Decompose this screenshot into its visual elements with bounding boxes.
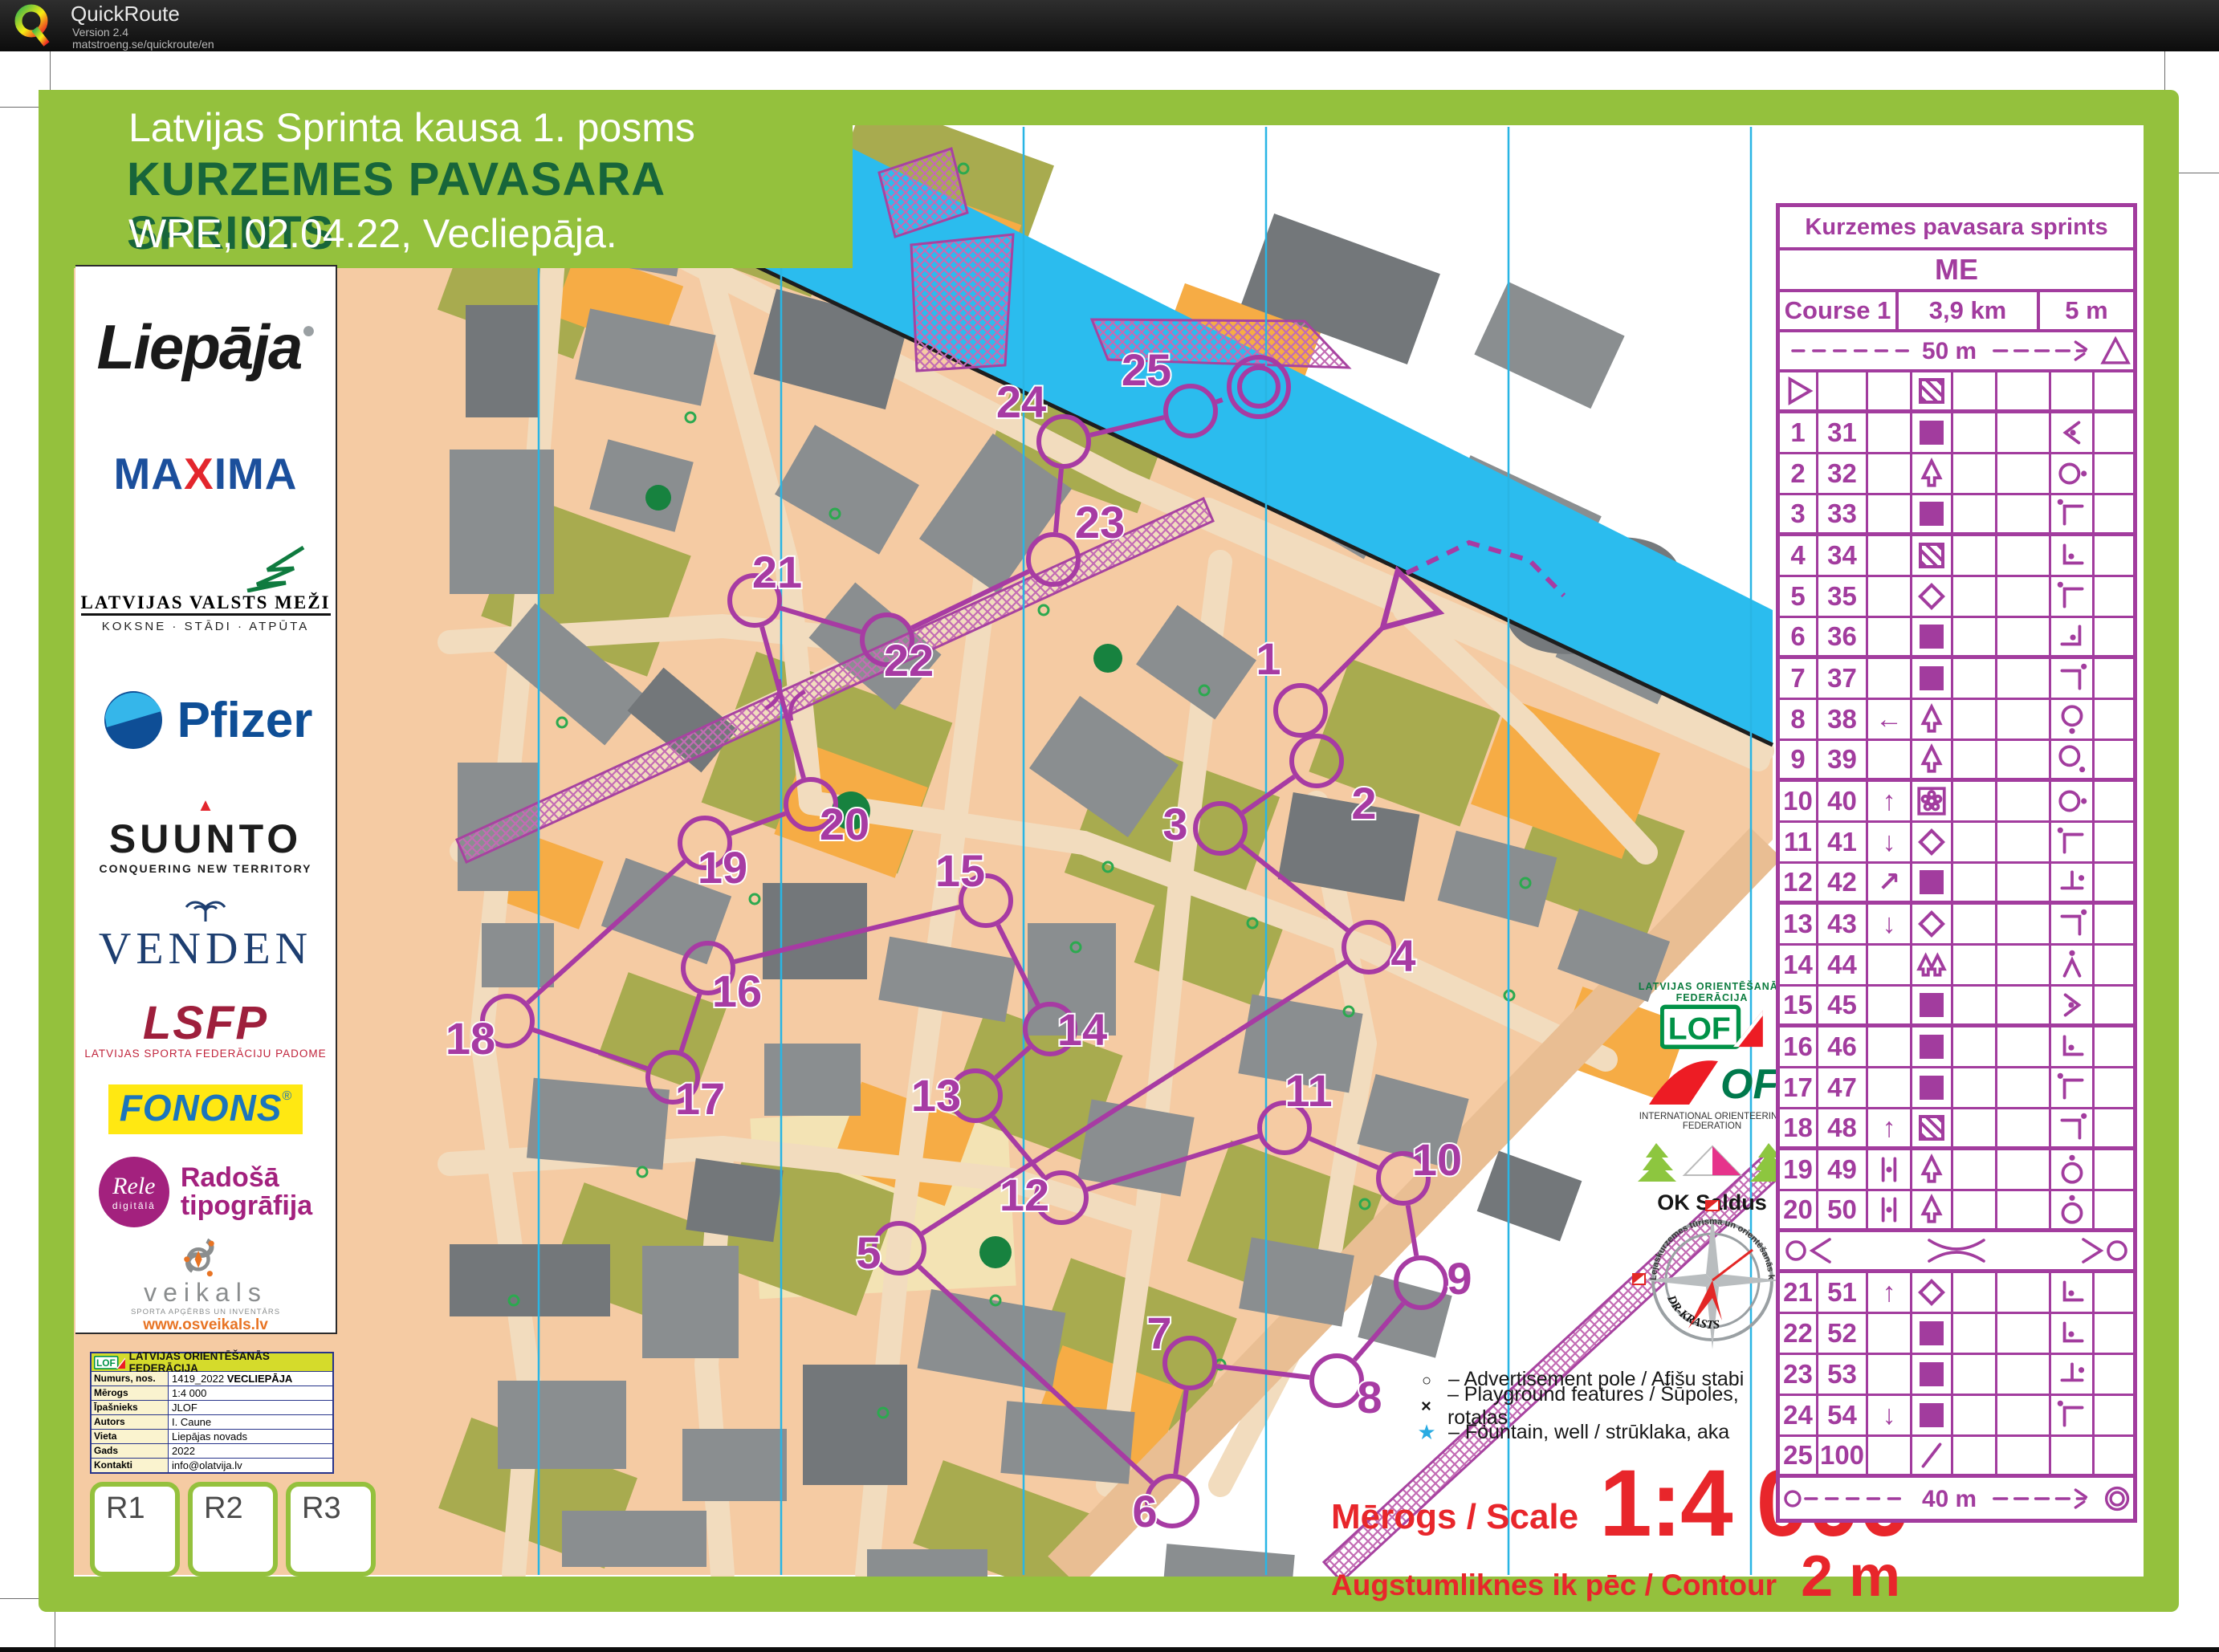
sheet-cell: 47: [1818, 1068, 1868, 1109]
sheet-cell: [1997, 1314, 2051, 1355]
sheet-cell: 3: [1780, 495, 1818, 536]
sheet-cell: [2095, 905, 2133, 946]
sheet-cell: [2051, 577, 2095, 618]
sheet-cell: [1953, 454, 1997, 495]
sheet-cell: [1912, 1355, 1953, 1396]
sheet-cell: 20: [1780, 1191, 1818, 1232]
sheet-cell: 6: [1780, 618, 1818, 659]
sheet-cell: [2051, 864, 2095, 905]
sheet-title: Kurzemes pavasara sprints: [1780, 207, 2133, 250]
sponsor-pfizer: Pfizer: [75, 656, 336, 784]
sheet-cell: 5: [1780, 577, 1818, 618]
sheet-cell: 14: [1780, 946, 1818, 987]
sheet-cell: [1953, 1437, 1997, 1478]
sheet-cell: [1868, 577, 1912, 618]
sheet-cell: [2051, 1355, 2095, 1396]
sheet-cell: [2051, 946, 2095, 987]
sheet-cell: 1: [1780, 413, 1818, 454]
sheet-cell: 39: [1818, 741, 1868, 782]
sheet-cell: 22: [1780, 1314, 1818, 1355]
sheet-cell: ↑: [1868, 782, 1912, 823]
sheet-cell: 54: [1818, 1396, 1868, 1437]
sheet-cell: 11: [1780, 823, 1818, 864]
sheet-cell: [1780, 372, 1818, 413]
sheet-cell: [1953, 536, 1997, 577]
sheet-cell: 48: [1818, 1109, 1868, 1150]
sheet-cell: [2095, 454, 2133, 495]
sheet-cell: [1953, 1355, 1997, 1396]
sponsor-liepaja: Liepāja●: [75, 267, 336, 427]
sheet-cell: [2095, 1396, 2133, 1437]
sheet-cell: 33: [1818, 495, 1868, 536]
meta-row: Mērogs1:4 000: [92, 1386, 332, 1401]
sheet-cell: [2095, 700, 2133, 741]
sheet-cell: 21: [1780, 1273, 1818, 1314]
svg-text:Lejaskurzemes tūrisma un orien: Lejaskurzemes tūrisma un orientēšanās kl…: [1632, 1200, 1776, 1280]
sheet-cell: [2095, 1068, 2133, 1109]
sheet-cell: [1997, 577, 2051, 618]
logo-iof: OF INTERNATIONAL ORIENTEERING FEDERATION: [1630, 1058, 1794, 1131]
sheet-cell: 32: [1818, 454, 1868, 495]
sheet-cell: 100: [1818, 1437, 1868, 1478]
sheet-cell: [1997, 782, 2051, 823]
sheet-cell: ↓: [1868, 823, 1912, 864]
sheet-cell: 36: [1818, 618, 1868, 659]
sheet-course: Course 1: [1780, 292, 1899, 329]
logo-lof: LATVIJAS ORIENTĒŠANĀS FEDERĀCIJA LOF: [1630, 981, 1794, 1055]
event-date-place: WRE, 02.04.22, Vecliepāja.: [128, 210, 617, 257]
sheet-cell: 2: [1780, 454, 1818, 495]
sheet-cell: [1868, 618, 1912, 659]
sheet-cell: [2051, 618, 2095, 659]
sheet-cell: [1997, 1396, 2051, 1437]
sheet-cell: [1953, 618, 1997, 659]
sheet-cell: [1912, 823, 1953, 864]
sheet-cell: [1912, 864, 1953, 905]
control-description-sheet: Kurzemes pavasara sprints ME Course 1 3,…: [1776, 203, 2137, 1523]
sheet-cell: 19: [1780, 1150, 1818, 1191]
sheet-cell: [2095, 1191, 2133, 1232]
sheet-cell: [2095, 823, 2133, 864]
sheet-cell: [1912, 1109, 1953, 1150]
sheet-cell: [1912, 1314, 1953, 1355]
sheet-cell: [1997, 823, 2051, 864]
sheet-taped-route-row: [1780, 1232, 2133, 1273]
legend-symbol-cross: ×: [1415, 1396, 1438, 1417]
sheet-cell: [2095, 946, 2133, 987]
sheet-cell: [1997, 1273, 2051, 1314]
sheet-cell: [1997, 987, 2051, 1027]
sheet-cell: [1912, 659, 1953, 700]
sheet-cell: [2051, 782, 2095, 823]
sheet-cell: [1868, 1314, 1912, 1355]
sheet-cell: [1868, 413, 1912, 454]
sheet-cell: [1953, 782, 1997, 823]
sheet-cell: [1953, 905, 1997, 946]
sheet-cell: [1953, 1396, 1997, 1437]
sheet-cell: [2095, 782, 2133, 823]
sheet-cell: [1953, 741, 1997, 782]
sponsor-lvm: LATVIJAS VALSTS MEŽI KOKSNE · STĀDI · AT…: [75, 519, 336, 656]
sheet-cell: [1868, 1150, 1912, 1191]
sheet-cell: 15: [1780, 987, 1818, 1027]
sheet-cell: [2051, 495, 2095, 536]
sheet-cell: 24: [1780, 1396, 1818, 1437]
sheet-cell: 41: [1818, 823, 1868, 864]
sheet-cell: [2051, 1109, 2095, 1150]
sheet-cell: 42: [1818, 864, 1868, 905]
sheet-cell: [2095, 987, 2133, 1027]
sheet-cell: [1997, 741, 2051, 782]
sheet-class: ME: [1780, 250, 2133, 292]
sheet-cell: [1912, 1150, 1953, 1191]
sponsor-osveikals: veikalsSPORTA APĢĒRBS UN INVENTĀRSwww.os…: [75, 1238, 336, 1334]
sheet-cell: ↑: [1868, 1273, 1912, 1314]
sheet-cell: [2095, 372, 2133, 413]
app-version: Version 2.4: [72, 26, 128, 39]
sheet-cell: 12: [1780, 864, 1818, 905]
sheet-cell: 23: [1780, 1355, 1818, 1396]
sheet-cell: [2095, 536, 2133, 577]
sheet-cell: [2095, 659, 2133, 700]
sheet-cell: [2051, 1314, 2095, 1355]
sheet-cell: [1868, 659, 1912, 700]
sheet-cell: [2051, 905, 2095, 946]
sheet-cell: [2095, 413, 2133, 454]
sheet-cell: [1997, 1068, 2051, 1109]
sheet-cell: 45: [1818, 987, 1868, 1027]
sponsor-fonons: FONONS®: [75, 1073, 336, 1145]
sheet-cell: [1953, 1314, 1997, 1355]
sheet-cell: [2051, 1437, 2095, 1478]
sheet-cell: [2095, 618, 2133, 659]
sheet-start-distance-row: 50 m: [1780, 332, 2133, 372]
sheet-cell: [1997, 618, 2051, 659]
sheet-cell: [1868, 1355, 1912, 1396]
sheet-cell: [1997, 1191, 2051, 1232]
sheet-cell: [2051, 987, 2095, 1027]
sheet-cell: [2095, 1355, 2133, 1396]
sheet-cell: [2051, 1150, 2095, 1191]
sheet-cell: [1953, 659, 1997, 700]
svg-text:40 m: 40 m: [1922, 1485, 1977, 1512]
event-title-block: Latvijas Sprinta kausa 1. posms KURZEMES…: [39, 90, 853, 268]
sheet-cell: [1868, 536, 1912, 577]
sheet-cell: 51: [1818, 1273, 1868, 1314]
sheet-cell: 40: [1818, 782, 1868, 823]
sheet-cell: [1953, 1109, 1997, 1150]
sheet-cell: [1868, 1437, 1912, 1478]
sheet-cell: 46: [1818, 1027, 1868, 1068]
sponsor-maxima: MAXIMA: [75, 427, 336, 519]
sheet-cell: [1912, 413, 1953, 454]
sheet-cell: 43: [1818, 905, 1868, 946]
sheet-cell: 8: [1780, 700, 1818, 741]
sheet-cell: [1868, 1068, 1912, 1109]
sheet-cell: [1953, 577, 1997, 618]
sheet-cell: [2095, 1273, 2133, 1314]
sheet-cell: [1953, 987, 1997, 1027]
sheet-cell: [1953, 1068, 1997, 1109]
meta-row: AutorsI. Caune: [92, 1415, 332, 1430]
scale-label: Mērogs / Scale: [1331, 1499, 1578, 1546]
sheet-cell: [1912, 1068, 1953, 1109]
sheet-cell: [1818, 372, 1868, 413]
event-series: Latvijas Sprinta kausa 1. posms: [128, 104, 695, 151]
sheet-cell: [1912, 1273, 1953, 1314]
sheet-cell: [1997, 454, 2051, 495]
meta-row: ĪpašnieksJLOF: [92, 1401, 332, 1415]
sheet-cell: ↑: [1868, 1109, 1912, 1150]
sheet-cell: 37: [1818, 659, 1868, 700]
sheet-cell: [2095, 1437, 2133, 1478]
sheet-cell: 16: [1780, 1027, 1818, 1068]
sheet-cell: 35: [1818, 577, 1868, 618]
sheet-cell: [1868, 454, 1912, 495]
sheet-cell: [1912, 536, 1953, 577]
sheet-cell: 49: [1818, 1150, 1868, 1191]
contour-value: 2 m: [1801, 1554, 1900, 1601]
sheet-cell: [2051, 372, 2095, 413]
sheet-cell: [1997, 1027, 2051, 1068]
sheet-cell: [1997, 946, 2051, 987]
sheet-cell: [1997, 905, 2051, 946]
sheet-cell: [1912, 577, 1953, 618]
legend-text: – Fountain, well / strūklaka, aka: [1448, 1421, 1729, 1444]
meta-row: VietaLiepājas novads: [92, 1430, 332, 1444]
sheet-cell: [1997, 495, 2051, 536]
sheet-cell: [1912, 1396, 1953, 1437]
sheet-cell: [1953, 1191, 1997, 1232]
sheet-cell: [1953, 864, 1997, 905]
sheet-cell: [1953, 946, 1997, 987]
sheet-cell: [1912, 1027, 1953, 1068]
sheet-cell: [1997, 1150, 2051, 1191]
sheet-cell: [1912, 372, 1953, 413]
sheet-finish-distance-row: 40 m: [1780, 1478, 2133, 1519]
sheet-length: 3,9 km: [1899, 292, 2040, 329]
sheet-cell: 44: [1818, 946, 1868, 987]
sponsor-venden: VENDEN: [75, 885, 336, 989]
legend-item: ×– Playground features / Šūpoles, rotaļa…: [1415, 1393, 1792, 1419]
sheet-cell: 34: [1818, 536, 1868, 577]
sheet-cell: [2051, 700, 2095, 741]
sheet-cell: 53: [1818, 1355, 1868, 1396]
sponsor-suunto: ▲SUUNTOCONQUERING NEW TERRITORY: [75, 784, 336, 885]
sheet-cell: [1912, 946, 1953, 987]
sheet-cell: [1997, 700, 2051, 741]
sheet-cell: ↓: [1868, 1396, 1912, 1437]
sheet-cell: [1953, 823, 1997, 864]
sheet-cell: 38: [1818, 700, 1868, 741]
sheet-cell: 10: [1780, 782, 1818, 823]
sheet-cell: [1953, 700, 1997, 741]
sheet-cell: 13: [1780, 905, 1818, 946]
sheet-cell: 50: [1818, 1191, 1868, 1232]
svg-text:OF: OF: [1720, 1061, 1779, 1108]
svg-text:50 m: 50 m: [1922, 338, 1977, 364]
relay-box-r3: R3: [286, 1482, 376, 1577]
sheet-cell: ←: [1868, 700, 1912, 741]
sheet-cell: [1912, 1191, 1953, 1232]
sheet-cell: [2051, 741, 2095, 782]
app-header: QuickRoute Version 2.4 matstroeng.se/qui…: [0, 0, 2219, 51]
contour-label: Augstumliknes ik pēc / Contour: [1331, 1570, 1777, 1600]
sheet-cell: [1953, 1150, 1997, 1191]
sheet-cell: 18: [1780, 1109, 1818, 1150]
sheet-cell: [1912, 454, 1953, 495]
sheet-cell: ↓: [1868, 905, 1912, 946]
sheet-cell: 17: [1780, 1068, 1818, 1109]
sheet-cell: [2051, 413, 2095, 454]
sheet-cell: [1953, 495, 1997, 536]
map-metadata-table: LOF LATVIJAS ORIENTĒŠANĀS FEDERĀCIJANumu…: [90, 1352, 334, 1474]
sheet-cell: [2095, 1314, 2133, 1355]
sheet-cell: [1868, 946, 1912, 987]
map-legend: ○– Advertisement pole / Afišu stabi×– Pl…: [1415, 1366, 1792, 1446]
sheet-cell: [1953, 1027, 1997, 1068]
sheet-cell: [1868, 741, 1912, 782]
sheet-cell: [1868, 1191, 1912, 1232]
sheet-cell: 25: [1780, 1437, 1818, 1478]
sheet-cell: [1912, 700, 1953, 741]
meta-row: Kontaktiinfo@olatvija.lv: [92, 1459, 332, 1472]
sheet-cell: [2051, 823, 2095, 864]
app-url: matstroeng.se/quickroute/en: [72, 38, 214, 51]
svg-text:LOF: LOF: [96, 1357, 116, 1369]
sheet-cell: [2095, 864, 2133, 905]
sheet-cell: [2051, 1027, 2095, 1068]
sheet-cell: [1912, 905, 1953, 946]
sheet-cell: [1953, 372, 1997, 413]
sheet-cell: [1997, 1437, 2051, 1478]
sheet-cell: [2051, 1191, 2095, 1232]
sheet-cell: [1997, 659, 2051, 700]
sheet-cell: [1912, 1437, 1953, 1478]
legend-symbol-circle: ○: [1415, 1369, 1439, 1390]
sheet-cell: ↗: [1868, 864, 1912, 905]
logo-dr-krasts: Lejaskurzemes tūrisma un orientēšanās kl…: [1630, 1200, 1794, 1365]
sheet-cell: [1953, 413, 1997, 454]
sheet-cell: [2095, 1109, 2133, 1150]
sheet-cell: 52: [1818, 1314, 1868, 1355]
sheet-cell: [2051, 659, 2095, 700]
sheet-cell: [2095, 1150, 2133, 1191]
sheet-cell: [1997, 1109, 2051, 1150]
sheet-cell: [2095, 577, 2133, 618]
sheet-cell: [1953, 1273, 1997, 1314]
sheet-cell: 9: [1780, 741, 1818, 782]
sheet-cell: [2095, 1027, 2133, 1068]
sheet-cell: [1997, 372, 2051, 413]
sheet-cell: [1912, 741, 1953, 782]
meta-header: LOF LATVIJAS ORIENTĒŠANĀS FEDERĀCIJA: [92, 1353, 332, 1372]
app-title: QuickRoute: [71, 2, 180, 26]
sheet-cell: [1997, 864, 2051, 905]
sheet-cell: [2095, 495, 2133, 536]
legend-symbol-star: ★: [1415, 1420, 1439, 1445]
sheet-cell: 7: [1780, 659, 1818, 700]
sheet-cell: [1912, 618, 1953, 659]
sponsor-panel: Liepāja●MAXIMA LATVIJAS VALSTS MEŽI KOKS…: [75, 265, 337, 1334]
quickroute-logo-icon: [10, 2, 58, 53]
sheet-climb: 5 m: [2040, 292, 2133, 329]
sponsor-lsfp: LSFPLATVIJAS SPORTA FEDERĀCIJU PADOME: [75, 989, 336, 1073]
sheet-cell: 4: [1780, 536, 1818, 577]
window-bottom-edge: [0, 1647, 2219, 1652]
sheet-cell: [2051, 1396, 2095, 1437]
sheet-cell: [1868, 987, 1912, 1027]
sheet-cell: [1912, 782, 1953, 823]
meta-row: Numurs, nos.1419_2022 VECLIEPĀJA: [92, 1372, 332, 1386]
sheet-cell: [2051, 454, 2095, 495]
sheet-cell: [2095, 741, 2133, 782]
sheet-cell: 31: [1818, 413, 1868, 454]
quickroute-window: QuickRoute Version 2.4 matstroeng.se/qui…: [0, 0, 2219, 1652]
sheet-cell: [2051, 1273, 2095, 1314]
sheet-cell: [1868, 372, 1912, 413]
sheet-cell: [1997, 413, 2051, 454]
sheet-cell: [2051, 1068, 2095, 1109]
sheet-cell: [1912, 987, 1953, 1027]
sheet-cell: [1868, 495, 1912, 536]
meta-row: Gads2022: [92, 1444, 332, 1459]
sponsor-radosa: Reledigitālā Radošātipogrāfija: [75, 1145, 336, 1238]
relay-box-r2: R2: [188, 1482, 278, 1577]
relay-box-r1: R1: [90, 1482, 180, 1577]
svg-text:LOF: LOF: [1667, 1011, 1730, 1046]
sheet-cell: [1912, 495, 1953, 536]
sheet-cell: [1997, 1355, 2051, 1396]
sheet-cell: [1868, 1027, 1912, 1068]
sheet-cell: [1997, 536, 2051, 577]
sheet-cell: [2051, 536, 2095, 577]
